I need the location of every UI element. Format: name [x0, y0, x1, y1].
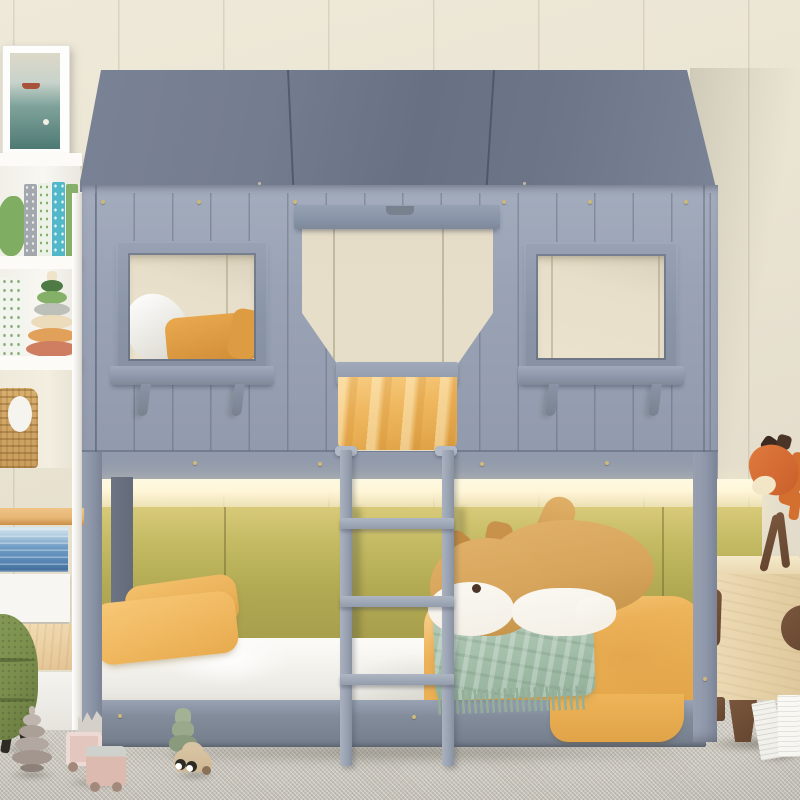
wall-screw — [502, 200, 506, 204]
shelf-side-panel — [72, 193, 82, 730]
toy-truck-crown — [66, 704, 130, 788]
ladder-rung — [340, 518, 454, 529]
book-page — [777, 695, 800, 757]
crown-stack — [78, 706, 102, 734]
ladder-rung — [340, 674, 454, 685]
corner-trim-left — [95, 185, 97, 452]
roof-seam-left — [287, 70, 295, 193]
stacking-rings-toy — [26, 271, 78, 356]
cloth-in-basket — [8, 396, 32, 432]
picture-frame — [2, 45, 70, 159]
car-wheel — [202, 766, 211, 775]
corner-trim-right — [703, 185, 705, 452]
wall-screw — [318, 462, 322, 466]
wall-screw — [293, 200, 297, 204]
moon — [43, 119, 49, 125]
window-left-interior — [130, 255, 254, 359]
ring — [26, 341, 78, 357]
window-left-sill — [110, 366, 274, 385]
car-eye — [175, 759, 186, 770]
truck-wheel — [90, 782, 100, 792]
shelf-board — [0, 256, 82, 269]
book — [52, 182, 65, 256]
dog-eye — [472, 584, 481, 593]
ring — [31, 315, 73, 329]
interior-seam — [551, 256, 553, 358]
book — [24, 184, 37, 256]
ocean-print-drawer — [0, 527, 68, 572]
ladder — [334, 446, 458, 768]
tree-base — [20, 764, 44, 772]
truck-wheel — [112, 782, 122, 792]
header-hook — [386, 206, 414, 215]
toy-car — [174, 742, 216, 780]
book — [38, 183, 51, 256]
window-right-sill — [518, 366, 684, 385]
open-book — [752, 692, 800, 767]
wall-screw — [588, 200, 592, 204]
shelf-board — [0, 153, 82, 166]
ladder-rail-right — [442, 450, 454, 766]
shelf-compartment — [0, 269, 80, 356]
ladder-rung — [340, 596, 454, 607]
wall-screw — [684, 200, 688, 204]
post-screw — [703, 677, 707, 681]
wall-screw — [193, 461, 197, 465]
wall-screw — [101, 200, 105, 204]
upper-bunk-blanket — [338, 377, 457, 450]
bookshelf — [0, 40, 84, 692]
truck-cab — [86, 746, 126, 786]
ottoman-crease — [0, 698, 36, 702]
bedroom-photo — [0, 0, 800, 800]
wall-screw — [480, 462, 484, 466]
sea-artwork — [10, 53, 60, 149]
interior-seam — [658, 256, 660, 358]
ottoman-crease — [0, 658, 36, 662]
car-eye — [186, 761, 197, 772]
wall-screw — [197, 200, 201, 204]
roof-seam-right — [485, 70, 495, 193]
shelf-board — [0, 356, 82, 370]
boat — [22, 83, 40, 89]
house-post-right — [693, 452, 717, 742]
truck-wheel — [68, 762, 78, 772]
wall-screw — [605, 461, 609, 465]
toy-tree-gray — [10, 706, 54, 780]
window-right-interior — [538, 256, 664, 358]
shelf-compartment — [0, 166, 80, 256]
dinosaur-toy — [0, 196, 26, 256]
shelf-compartment — [0, 370, 80, 468]
ladder-rail-left — [340, 450, 352, 766]
speckled-vase — [0, 277, 24, 356]
plush-shiba-dog — [428, 496, 658, 638]
